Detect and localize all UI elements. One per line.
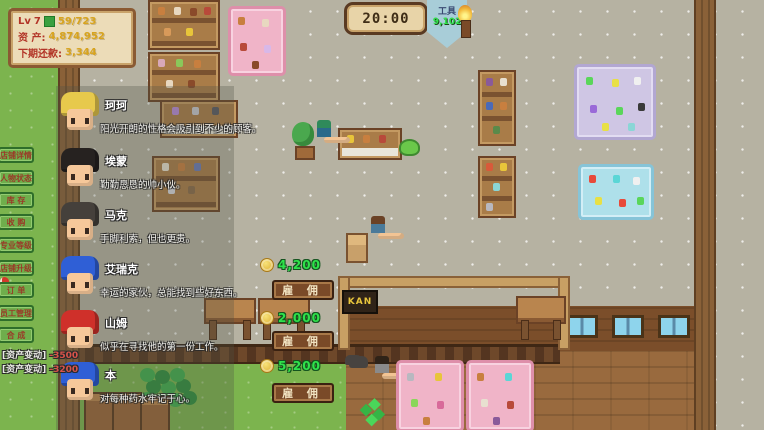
npc-customer[interactable] <box>375 356 389 373</box>
avatar-face <box>67 165 93 186</box>
shelf-items-icon <box>486 163 493 171</box>
character-name: 山姆 <box>105 315 127 331</box>
rug-items-icon <box>586 77 593 85</box>
rug-items-icon <box>238 17 245 25</box>
tools-label: 工具 <box>438 4 456 17</box>
log-value: -3500 <box>49 351 78 361</box>
window-icon <box>566 315 598 338</box>
character-name: 珂珂 <box>105 97 127 113</box>
npc-customer[interactable] <box>371 216 385 233</box>
sidebar-item-inventory[interactable]: 库 存 <box>0 192 34 208</box>
shelf <box>148 0 220 50</box>
display-rug <box>228 6 286 76</box>
character-avatar[interactable] <box>60 148 100 188</box>
sidebar-item-staff-management[interactable]: 员工管理 <box>0 305 34 321</box>
character-avatar[interactable] <box>60 310 100 350</box>
log-label: [资产变动] <box>2 351 46 361</box>
character-name: 艾瑞克 <box>105 261 138 277</box>
potted-plant-icon <box>292 122 314 146</box>
coin-icon <box>260 258 274 272</box>
shelf <box>478 156 516 218</box>
repayment-label: 下期还款: <box>18 45 62 60</box>
avatar-face <box>67 273 93 294</box>
xp-value: 59/723 <box>58 16 96 27</box>
shelf <box>338 128 402 160</box>
character-desc: 勤勤恳恳的帅小伙。 <box>100 177 186 191</box>
sidebar-item-profession-level[interactable]: 专业等级 <box>0 237 34 253</box>
hire-list-item: 艾瑞克 幸运的家伙，总能找到些好东西。 <box>58 256 258 310</box>
coin-icon <box>260 311 274 325</box>
hire-list-item: 山姆 似乎在寻找他的第一份工作。 <box>58 310 258 364</box>
hire-list-item: 马克 手脚利索，但也更贵。 <box>58 202 258 256</box>
sidebar-item-shop-details[interactable]: 店铺详情 <box>0 147 34 163</box>
npc-customer[interactable] <box>317 120 331 137</box>
character-desc: 似乎在寻找他的第一份工作。 <box>100 339 224 353</box>
sidebar-item-orders[interactable]: 订 单 <box>0 282 34 298</box>
sidebar-item-purchase[interactable]: 收 购 <box>0 214 34 230</box>
slime-npc[interactable] <box>399 139 420 156</box>
log-line: [资产变动] -3200 <box>2 362 78 375</box>
price-value: 2,000 <box>278 311 321 325</box>
shelf-items-icon <box>158 59 165 67</box>
sidebar-item-crafting[interactable]: 合 成 <box>0 327 34 343</box>
price-value: 4,200 <box>278 258 321 272</box>
assets-label: 资 产: <box>18 29 45 44</box>
display-rug <box>466 360 534 430</box>
character-name: 埃蒙 <box>105 153 127 169</box>
hire-price: 4,200 <box>260 258 321 272</box>
dresser-icon <box>346 233 368 263</box>
xp-bar-icon <box>44 16 55 27</box>
cat-npc[interactable] <box>349 356 368 368</box>
gem-rug <box>574 64 656 140</box>
avatar-face <box>67 219 93 240</box>
character-desc: 幸运的家伙，总能找到些好东西。 <box>100 285 243 299</box>
avatar-face <box>67 379 93 400</box>
player-hud: Lv 7 59/723 资 产: 4,874,952 下期还款: 3,344 <box>8 8 136 68</box>
hire-list-item: 埃蒙 勤勤恳恳的帅小伙。 <box>58 148 258 202</box>
hire-button[interactable]: 雇 佣 <box>272 331 334 351</box>
character-avatar[interactable] <box>60 202 100 242</box>
pergola-beam <box>338 276 570 288</box>
price-value: 5,200 <box>278 359 321 373</box>
display-rug <box>396 360 464 430</box>
window-icon <box>612 315 644 338</box>
shelf-items-icon <box>486 78 493 86</box>
gem-rug <box>578 164 654 220</box>
game-screen: KAN <box>0 0 764 430</box>
character-desc: 对每种药水牢记于心。 <box>100 391 195 405</box>
market-table <box>516 296 566 324</box>
character-name: 本 <box>105 367 116 383</box>
hire-button[interactable]: 雇 佣 <box>272 280 334 300</box>
shelf-items-icon <box>158 7 165 15</box>
hire-list-item: 珂珂 阳光开朗的性格会吸引到不少的顾客。 <box>58 92 258 146</box>
shelf <box>478 70 516 146</box>
clock-sign: 20:00 <box>344 2 428 35</box>
coin-icon <box>260 359 274 373</box>
assets-value: 4,874,952 <box>48 31 104 42</box>
character-avatar[interactable] <box>60 92 100 132</box>
log-label: [资产变动] <box>2 365 46 375</box>
log-line: [资产变动] -3500 <box>2 348 78 361</box>
potted-plant-icon <box>295 146 315 160</box>
hire-button[interactable]: 雇 佣 <box>272 383 334 403</box>
repayment-value: 3,344 <box>65 47 97 58</box>
rug-items-icon <box>407 373 414 381</box>
shop-sign: KAN <box>342 290 378 314</box>
character-desc: 手脚利索，但也更贵。 <box>100 231 195 245</box>
rug-items-icon <box>589 175 596 183</box>
rug-items-icon <box>477 373 484 381</box>
sidebar-item-character-status[interactable]: 人物状态 <box>0 170 34 186</box>
hire-price: 5,200 <box>260 359 321 373</box>
log-value: -3200 <box>49 365 78 375</box>
torch-icon <box>461 20 471 38</box>
character-desc: 阳光开朗的性格会吸引到不少的顾客。 <box>100 121 262 135</box>
character-name: 马克 <box>105 207 127 223</box>
avatar-face <box>67 327 93 348</box>
sidebar-item-shop-upgrade[interactable]: 店铺升级 <box>0 260 34 276</box>
level-label: Lv <box>18 16 31 27</box>
tools-value: 9,102 <box>433 17 461 27</box>
level-value: 7 <box>34 16 41 27</box>
character-avatar[interactable] <box>60 256 100 296</box>
window-icon <box>658 315 690 338</box>
hire-list-item: 本 对每种药水牢记于心。 <box>58 362 258 416</box>
avatar-face <box>67 109 93 130</box>
hire-price: 2,000 <box>260 311 321 325</box>
wood-post-right <box>694 0 716 430</box>
